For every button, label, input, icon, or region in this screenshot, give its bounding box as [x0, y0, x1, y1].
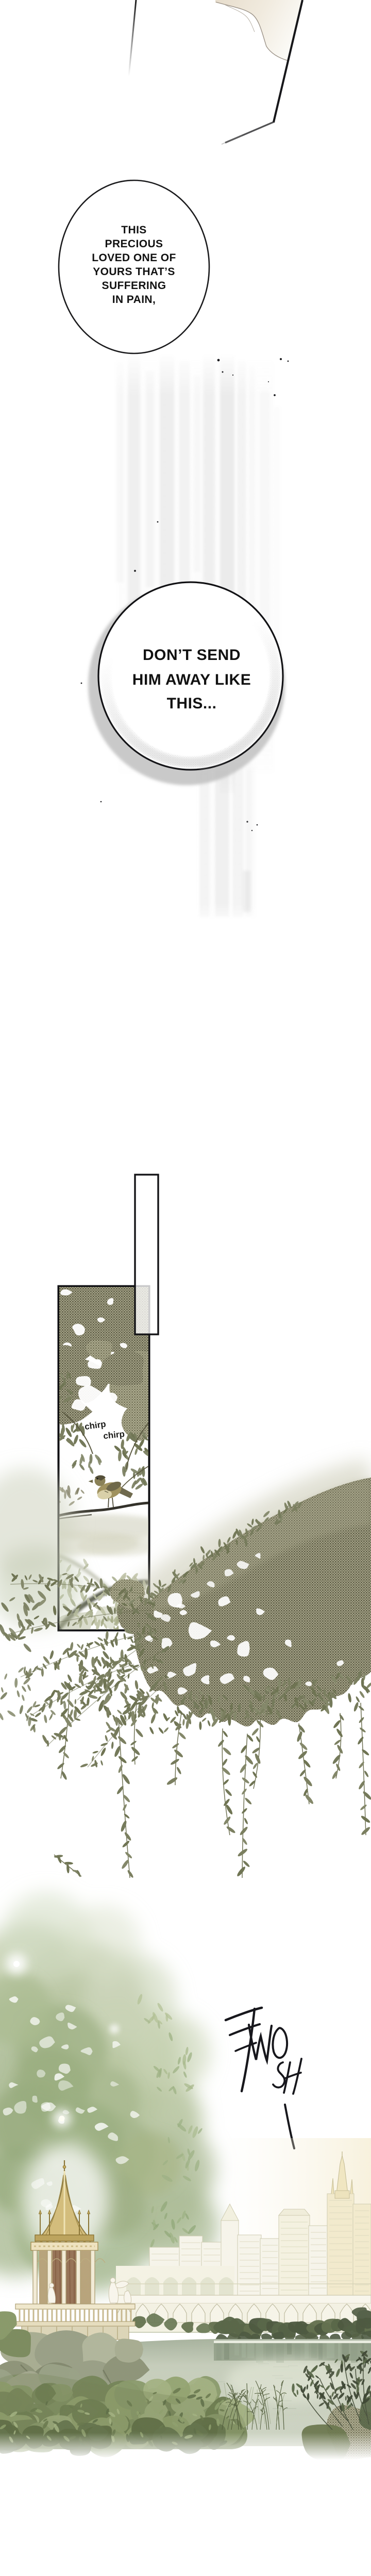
svg-text:YOURS THAT’S: YOURS THAT’S — [93, 266, 175, 278]
svg-text:PRECIOUS: PRECIOUS — [105, 238, 163, 250]
svg-text:THIS...: THIS... — [167, 695, 217, 712]
svg-text:HIM AWAY LIKE: HIM AWAY LIKE — [132, 671, 251, 688]
svg-text:LOVED ONE OF: LOVED ONE OF — [92, 252, 176, 264]
svg-text:IN PAIN,: IN PAIN, — [112, 294, 156, 306]
svg-text:SUFFERING: SUFFERING — [102, 280, 166, 292]
svg-text:DON’T SEND: DON’T SEND — [143, 647, 241, 664]
svg-text:THIS: THIS — [121, 224, 146, 236]
